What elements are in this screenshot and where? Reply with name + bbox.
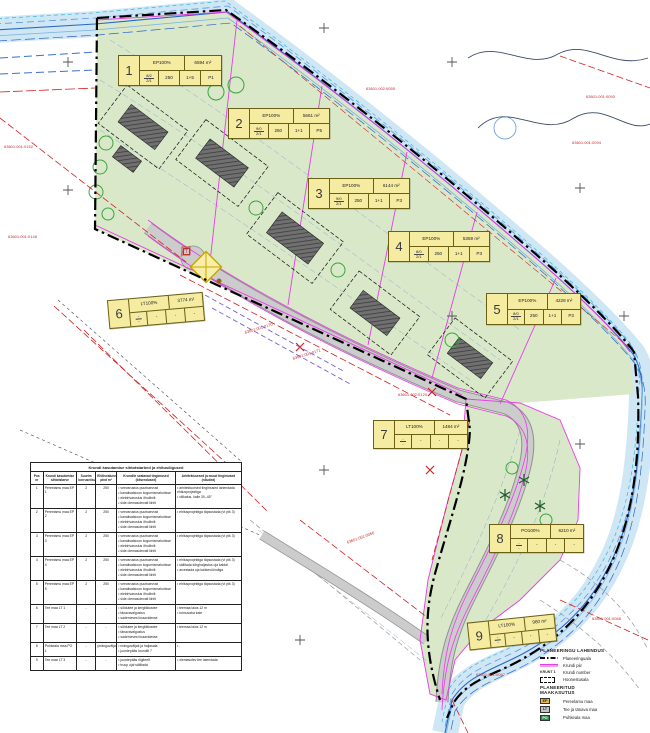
legend-item-plot-boundary: Krundi piir (540, 663, 648, 668)
plot-right-cell: 1+1 (288, 124, 308, 138)
plot-right-cell: P3 (561, 310, 580, 325)
table-cell: 5 (31, 581, 44, 604)
plot-number: 2 (229, 109, 250, 138)
plot-right-cell: P5 (309, 124, 329, 138)
table-cell: 2 (31, 509, 44, 532)
plot-number: 5 (487, 294, 508, 324)
cadastral-label: 63601:001:0093 (586, 94, 615, 99)
table-cell: Pereelamu maa EP 2 (44, 509, 78, 532)
table-cell: 9 (31, 657, 44, 670)
plot-right-cell: 250 (348, 194, 368, 208)
plot-height-storeys: 9/02/1 (330, 194, 348, 208)
plot-right-cell: - (430, 435, 449, 448)
plot-right-cell: - (448, 435, 467, 448)
plot-label-1: 1EP100%6594 m²8/22/12501+5P1 (118, 55, 222, 86)
table-cell: • veevarustus puurkaevust• kanalisatsioo… (117, 485, 176, 508)
plot-area: 6144 m² (373, 179, 409, 193)
plot-right-cell: - (146, 310, 166, 325)
plot-right-cell: 1+5 (179, 71, 200, 85)
table-row: 7Tee maa LT 2--• sõidutee ja kergliiklus… (31, 624, 241, 643)
plot-label-3: 3EP100%6144 m²9/02/12501+1P3 (308, 178, 410, 209)
plot-right-cell: 250 (428, 247, 448, 261)
plot-right-cell: - (504, 632, 522, 646)
plot-right-cell: 1+1 (368, 194, 388, 208)
table-cell: • olemasolev tee laiendada (176, 657, 241, 670)
plot-landuse: EP100% (410, 232, 453, 246)
legend-label: Puhkeala maa (563, 715, 590, 720)
table-cell: • sõidutee ja kergliiklustee• tänavavalg… (117, 605, 176, 623)
plot-right-cell: P3 (389, 194, 409, 208)
table-header-cell: Arhitektuursed ja muud tingimused (nõude… (176, 472, 241, 483)
table-cell: Tee maa LT 1 (44, 605, 78, 623)
table-cell: 3 (31, 533, 44, 556)
cadastral-label: 63601:002:0055 (366, 86, 395, 91)
cadastral-label: 63601:002:0120 (398, 392, 427, 397)
plot-area: 4228 m² (547, 294, 580, 309)
table-row: 3Pereelamu maa EP 32250• veevarustus puu… (31, 533, 241, 557)
table-cell: - (77, 643, 96, 656)
plot-right-cell: - (546, 539, 565, 552)
plot-label-2: 2EP100%5661 m²9/02/12501+1P5 (228, 108, 330, 139)
table-cell: 250 (96, 509, 117, 532)
plot-landuse: LT100% (395, 421, 434, 434)
legend-title-solution: PLANEERINGU LAHENDUS (540, 648, 648, 654)
table-cell: • ehitusprojektiga täpsustada (vt ptk 3) (176, 509, 241, 532)
table-cell: • - (176, 643, 241, 656)
table-cell: • teemaa laius 12 m• tolmuvaba kate (176, 605, 241, 623)
table-cell: 2 (77, 485, 96, 508)
plot-right-cell: 250 (158, 71, 179, 85)
plot-number-symbol: KRUNT 1 (540, 670, 560, 674)
table-cell: - (96, 605, 117, 623)
table-cell: • juurdepääs riigiteelt• truup ojal säil… (117, 657, 176, 670)
plot-area: 6210 m² (550, 525, 583, 538)
table-cell: (mänguväljak) (96, 643, 117, 656)
table-header-cell: Pos nr (31, 472, 44, 483)
cadastral-label: 63601:001:0068 (592, 616, 621, 621)
legend-label: Pereelamu maa (563, 699, 593, 704)
building-area-symbol (540, 677, 560, 683)
landuse-chip-ep: EP (540, 698, 550, 705)
table-body: 1Pereelamu maa EP 12250• veevarustus puu… (31, 485, 241, 670)
plot-boundary-symbol (540, 664, 560, 667)
table-header-cell: Suurim korruselisus (77, 472, 96, 483)
table-cell: • teemaa laius 12 m (176, 624, 241, 642)
plot-number: 7 (374, 421, 395, 448)
plot-number: 9 (468, 621, 492, 649)
table-cell: • ehitusprojektiga täpsustada (vt ptk 3) (176, 533, 241, 556)
plot-height-storeys: -- (490, 633, 506, 647)
table-cell: • arhitektuursed tingimused lahendada eh… (176, 485, 241, 508)
table-row: 9Tee maa LT 3--• juurdepääs riigiteelt• … (31, 657, 241, 670)
detail-plan-drawing: 1EP100%6594 m²8/22/12501+5P12EP100%5661 … (0, 0, 650, 733)
cadastral-label: 63601:001:0094 (572, 140, 601, 145)
table-cell: Tee maa LT 3 (44, 657, 78, 670)
table-header-cell: Ehitisealune pind m² (96, 472, 117, 483)
legend-label: Krundi piir (563, 663, 582, 668)
plot-area: 1484 m² (434, 421, 467, 434)
table-cell: - (77, 605, 96, 623)
plot-number: 1 (119, 56, 140, 85)
plot-height-storeys: -- (130, 312, 147, 326)
plot-right-cell: 1+1 (448, 247, 468, 261)
table-cell: • ehitusprojektiga täpsustada (vt ptk 3)… (176, 557, 241, 580)
table-cell: • veevarustus puurkaevust• kanalisatsioo… (117, 581, 176, 604)
plot-right-cell: 1+1 (543, 310, 562, 325)
plot-right-cell: - (165, 309, 185, 324)
plot-landuse: EP100% (250, 109, 293, 123)
cadastral-label: 63601:001:0148 (8, 234, 37, 239)
table-row: 6Tee maa LT 1--• sõidutee ja kergliiklus… (31, 605, 241, 624)
plot-right-cell: P3 (469, 247, 489, 261)
cadastral-label: 63601:001:0152 (4, 144, 33, 149)
legend-item-po: POPuhkeala maa (540, 715, 648, 722)
plot-number: 3 (309, 179, 330, 208)
table-cell: 250 (96, 557, 117, 580)
landuse-chip-lt: LT (540, 706, 550, 713)
plot-right-cell: P1 (200, 71, 221, 85)
table-cell: 2 (77, 509, 96, 532)
table-cell: Pereelamu maa EP 3 (44, 533, 78, 556)
plot-area: 5359 m² (453, 232, 489, 246)
plot-landuse: EP100% (140, 56, 184, 70)
table-cell: Pereelamu maa EP 4 (44, 557, 78, 580)
table-cell: - (96, 624, 117, 642)
table-cell: Pereelamu maa EP 1 (44, 485, 78, 508)
plot-number: 6 (108, 299, 131, 328)
transformer-label: T (183, 248, 190, 255)
plot-right-cell: - (184, 307, 204, 322)
legend-item-lt: LTTee ja tänava maa (540, 706, 648, 713)
plot-height-storeys: -- (511, 539, 527, 552)
table-cell: • ehitusprojektiga täpsustada (vt ptk 3) (176, 581, 241, 604)
table-cell: 2 (77, 557, 96, 580)
table-cell: 4 (31, 557, 44, 580)
plot-area: 6594 m² (184, 56, 221, 70)
plot-label-4: 4EP100%5359 m²8/02/12501+1P3 (388, 231, 490, 262)
plot-right-cell: - (521, 630, 539, 644)
legend-label: Tee ja tänava maa (563, 707, 597, 712)
plot-right-cell: - (538, 628, 556, 642)
legend-item-building-area: Hoonestusala (540, 677, 648, 683)
plot-number: 8 (490, 525, 511, 552)
plot-landuse: PO100% (511, 525, 550, 538)
plot-landuse: EP100% (508, 294, 547, 309)
plot-right-cell: 250 (524, 310, 543, 325)
table-cell: 1 (31, 485, 44, 508)
table-header-row: Pos nrKrundi kasutamise sihtotstarveSuur… (31, 472, 241, 484)
table-cell: 8 (31, 643, 44, 656)
table-cell: • veevarustus puurkaevust• kanalisatsioo… (117, 509, 176, 532)
plot-right-cell: 250 (268, 124, 288, 138)
table-row: 1Pereelamu maa EP 12250• veevarustus puu… (31, 485, 241, 509)
planning-area-symbol (540, 657, 560, 659)
table-cell: Puhkeala maa PO 1 (44, 643, 78, 656)
table-cell: 7 (31, 624, 44, 642)
plot-landuse: EP100% (330, 179, 373, 193)
table-cell: 250 (96, 581, 117, 604)
table-cell: • sõidutee ja kergliiklustee• tänavavalg… (117, 624, 176, 642)
legend-label: Planeeringuala (563, 656, 591, 661)
table-cell: - (77, 624, 96, 642)
plot-height-storeys: 8/22/1 (140, 71, 158, 85)
table-row: 4Pereelamu maa EP 42250• veevarustus puu… (31, 557, 241, 581)
table-cell: 2 (77, 533, 96, 556)
legend-label: Hoonestusala (563, 677, 589, 682)
table-header-cell: Krundi kasutamise sihtotstarve (44, 472, 78, 483)
table-cell: 250 (96, 533, 117, 556)
legend-item-planning-area: Planeeringuala (540, 656, 648, 661)
legend-item-plot-number: KRUNT 1Krundi number (540, 670, 648, 675)
table-cell: - (77, 657, 96, 670)
table-row: 2Pereelamu maa EP 22250• veevarustus puu… (31, 509, 241, 533)
legend: PLANEERINGU LAHENDUS PlaneeringualaKrund… (540, 646, 648, 723)
table-cell: 250 (96, 485, 117, 508)
table-cell: 2 (77, 581, 96, 604)
building-rights-table: Krundi kasutamise sihtotstarbed ja ehitu… (30, 462, 242, 671)
plot-height-storeys: 8/02/1 (410, 247, 428, 261)
ditch-lines-topleft (0, 52, 95, 92)
table-cell: - (96, 657, 117, 670)
plot-label-7: 7LT100%1484 m²----- (373, 420, 468, 449)
plot-area: 5661 m² (293, 109, 329, 123)
plot-label-5: 5EP100%4228 m²8/02/12501+1P3 (486, 293, 581, 325)
table-cell: 6 (31, 605, 44, 623)
table-header-cell: Krundile seatavad tingimused (kitsenduse… (117, 472, 176, 483)
legend-items-solution: PlaneeringualaKrundi piirKRUNT 1Krundi n… (540, 656, 648, 683)
plot-right-cell: - (564, 539, 583, 552)
table-row: 5Pereelamu maa EP 52250• veevarustus puu… (31, 581, 241, 605)
plot-right-cell: - (411, 435, 430, 448)
legend-item-ep: EPPereelamu maa (540, 698, 648, 705)
table-cell: • veevarustus puurkaevust• kanalisatsioo… (117, 557, 176, 580)
plot-number: 4 (389, 232, 410, 261)
table-title: Krundi kasutamise sihtotstarbed ja ehitu… (31, 463, 241, 472)
cadastral-label: 63601:001:0067 (476, 672, 505, 677)
plot-height-storeys: 8/02/1 (508, 310, 524, 325)
legend-label: Krundi number (563, 670, 590, 675)
table-cell: • veevarustus puurkaevust• kanalisatsioo… (117, 533, 176, 556)
legend-items-landuse: EPPereelamu maaLTTee ja tänava maaPOPuhk… (540, 698, 648, 721)
landuse-chip-po: PO (540, 715, 550, 722)
table-row: 8Puhkeala maa PO 1-(mänguväljak)• mänguv… (31, 643, 241, 657)
table-cell: Pereelamu maa EP 5 (44, 581, 78, 604)
plot-right-cell: - (527, 539, 546, 552)
legend-title-landuse: PLANEERITUD MAAKASUTUS (540, 685, 602, 696)
table-cell: Tee maa LT 2 (44, 624, 78, 642)
table-cell: • mänguväljak ja haljasala• juurdepääs k… (117, 643, 176, 656)
plot-label-8: 8PO100%6210 m²----- (489, 524, 584, 553)
plot-height-storeys: -- (395, 435, 411, 448)
plot-height-storeys: 9/02/1 (250, 124, 268, 138)
